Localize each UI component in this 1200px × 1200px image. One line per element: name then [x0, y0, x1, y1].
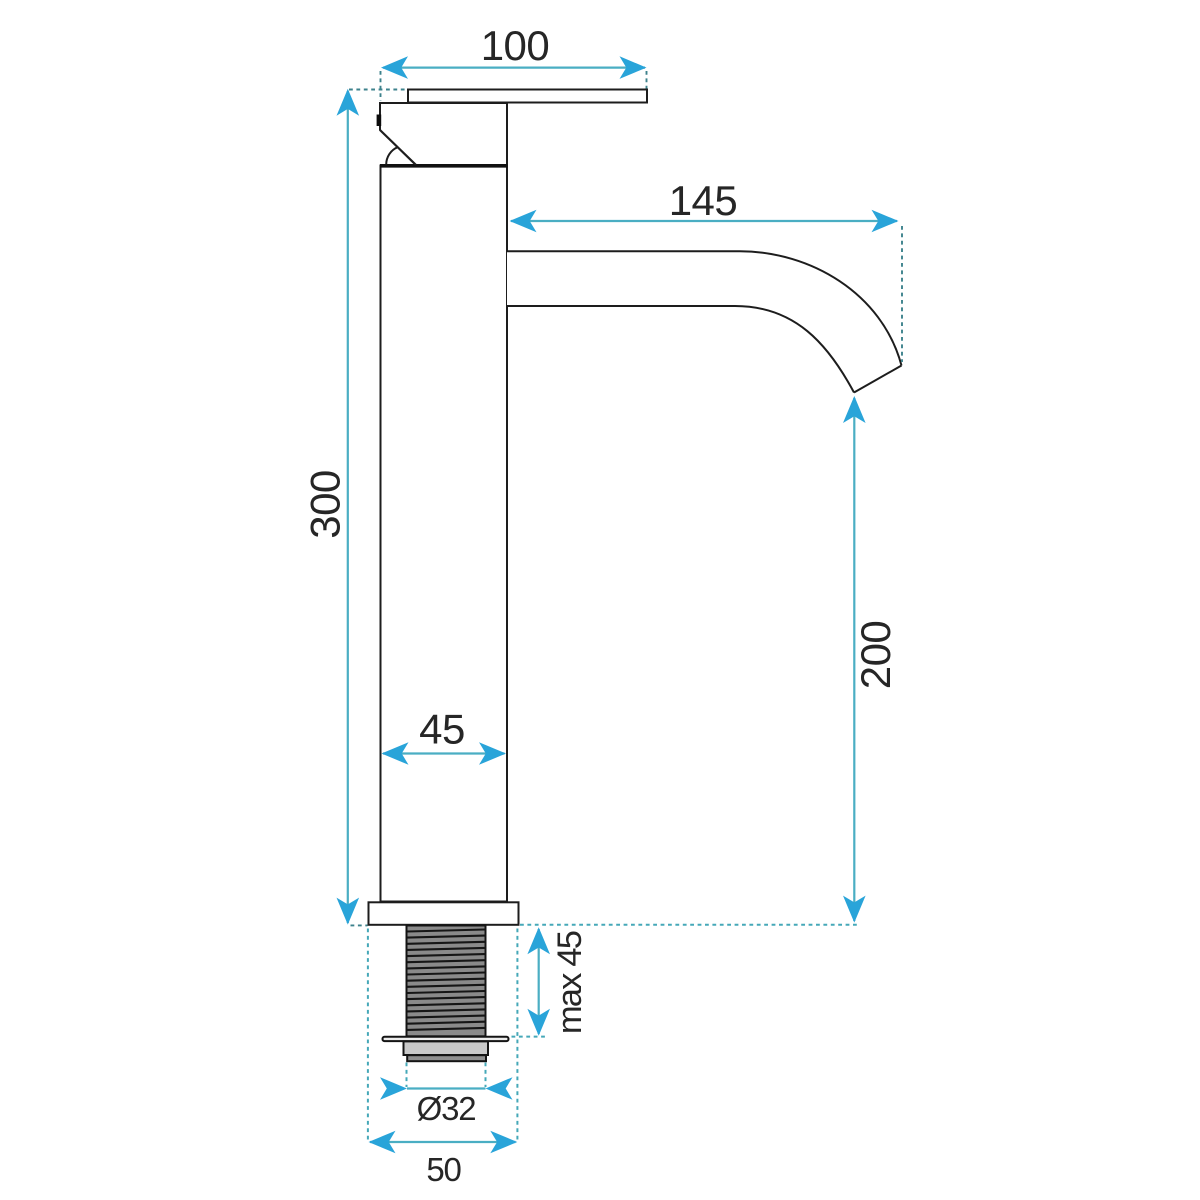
svg-text:max 45: max 45	[551, 931, 589, 1034]
svg-text:145: 145	[669, 177, 738, 224]
svg-text:100: 100	[481, 22, 550, 69]
svg-text:50: 50	[426, 1151, 461, 1188]
svg-text:200: 200	[852, 621, 899, 690]
svg-text:Ø32: Ø32	[417, 1090, 476, 1127]
svg-text:300: 300	[302, 470, 349, 539]
svg-text:45: 45	[419, 706, 465, 753]
